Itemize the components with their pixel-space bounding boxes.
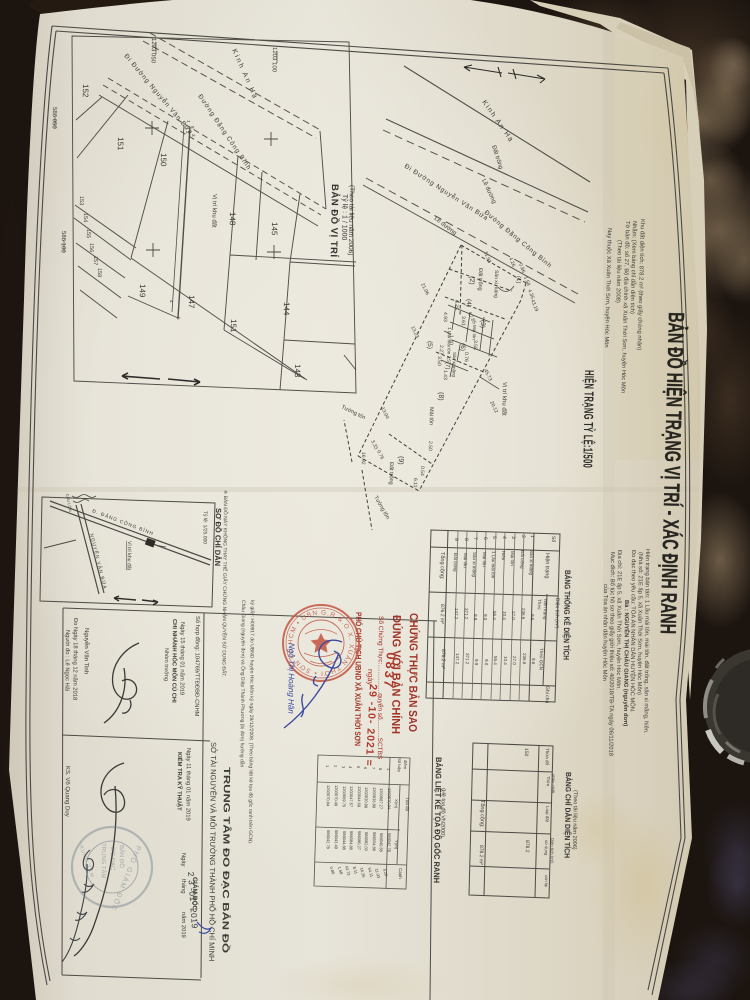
svg-text:1.43: 1.43 [442, 370, 448, 380]
svg-text:2.50: 2.50 [427, 441, 433, 451]
svg-text:9.0: 9.0 [483, 614, 488, 621]
svg-text:Mái tôn: Mái tôn [482, 552, 487, 567]
svg-text:148: 148 [228, 212, 237, 226]
svg-text:154: 154 [82, 213, 88, 222]
svg-text:151: 151 [116, 137, 125, 151]
svg-text:Mái tôn: Mái tôn [428, 407, 434, 425]
svg-text:KIỂM TRA KỸ THUẬT: KIỂM TRA KỸ THUẬT [175, 752, 183, 811]
svg-text:Bà : NGUYỄN THỊ CHÂU GIANG (ng: Bà : NGUYỄN THỊ CHÂU GIANG (nguyên đơn) [622, 600, 630, 726]
svg-text:Ngô Thị Hoàng Hân: Ngô Thị Hoàng Hân [286, 643, 296, 714]
svg-text:Số: Số [550, 536, 556, 542]
svg-text:6: 6 [482, 537, 488, 540]
svg-text:TRUNG TÂM ĐO ĐẠC BẢN ĐỒ: TRUNG TÂM ĐO ĐẠC BẢN ĐỒ [220, 767, 233, 953]
svg-text:Tọa độ: Tọa độ [405, 797, 410, 812]
svg-text:(3): (3) [479, 320, 486, 328]
svg-text:(8): (8) [437, 392, 444, 401]
svg-text:Cạnh: Cạnh [398, 868, 403, 879]
svg-text:SƠ ĐỒ CHỈ DẪN: SƠ ĐỒ CHỈ DẪN [213, 508, 224, 566]
svg-text:BẢN ĐỒ: BẢN ĐỒ [118, 845, 125, 868]
svg-text:(7): (7) [444, 362, 450, 369]
svg-text:7: 7 [472, 537, 478, 540]
svg-text:1 Lầu mái tôn: 1 Lầu mái tôn [491, 551, 496, 579]
svg-text:3.58: 3.58 [472, 340, 478, 350]
svg-text:(6): (6) [459, 343, 466, 351]
svg-text:Người đo : Lê Ngọc Hải: Người đo : Lê Ngọc Hải [63, 630, 70, 691]
svg-text:Diện tích (m²): Diện tích (m²) [553, 598, 560, 629]
svg-text:1203044.69: 1203044.69 [357, 786, 362, 808]
svg-text:1203 050: 1203 050 [150, 38, 156, 64]
svg-text:236.6: 236.6 [521, 608, 526, 620]
svg-text:Mái tôn: Mái tôn [463, 553, 468, 568]
svg-text:X(m): X(m) [394, 799, 399, 809]
svg-text:155: 155 [85, 229, 91, 238]
svg-text:158: 158 [96, 268, 102, 277]
svg-text:1203087.27: 1203087.27 [379, 788, 384, 810]
svg-text:Đất trống: Đất trống [453, 553, 458, 572]
svg-text:9.6: 9.6 [530, 614, 535, 621]
svg-text:878.2 m²: 878.2 m² [478, 845, 484, 865]
svg-text:10.4: 10.4 [503, 656, 508, 665]
svg-text:Y(m): Y(m) [394, 840, 399, 850]
svg-text:2.27: 2.27 [438, 345, 444, 355]
svg-text:9.9: 9.9 [473, 614, 478, 621]
svg-text:CHỨNG THỰC BẢN SAO: CHỨNG THỰC BẢN SAO [406, 613, 420, 732]
svg-text:Đo Ngày 18 tháng 12 năm 201: Đo Ngày 18 tháng 12 năm 2018 [71, 618, 78, 700]
svg-text:1 Lầu mái tôn 2,5T: 1 Lầu mái tôn 2,5T [446, 327, 452, 365]
svg-text:1203 100: 1203 100 [271, 47, 277, 73]
svg-text:còn lại: còn lại [544, 875, 549, 887]
svg-text:Đất trống: Đất trống [388, 462, 394, 485]
svg-text:152: 152 [81, 84, 90, 98]
svg-text:586040.58: 586040.58 [379, 833, 384, 853]
svg-text:878.2: 878.2 [524, 840, 530, 853]
svg-text:HIỆN TRẠNG TỶ LỆ:1/500: HIỆN TRẠNG TỶ LỆ:1/500 [580, 370, 597, 468]
svg-text:1203070.94: 1203070.94 [387, 788, 392, 810]
svg-text:3.61: 3.61 [460, 316, 466, 326]
svg-text:6.75: 6.75 [453, 300, 459, 310]
svg-text:586034.89: 586034.89 [372, 832, 377, 852]
svg-text:0.76: 0.76 [463, 352, 469, 362]
svg-text:Hiên: Hiên [501, 551, 506, 561]
svg-text:Tỷ lệ: 1/25.000: Tỷ lệ: 1/25.000 [201, 511, 209, 544]
svg-text:Nhóm trưởng: Nhóm trưởng [163, 648, 170, 681]
svg-text:157: 157 [92, 256, 98, 265]
svg-text:0837: 0837 [381, 652, 399, 690]
svg-text:876.2 m²: 876.2 m² [440, 649, 446, 669]
svg-text:1203030.88: 1203030.88 [364, 787, 369, 809]
svg-text:55.4: 55.4 [493, 656, 498, 665]
svg-text:1203047.57: 1203047.57 [349, 786, 354, 808]
svg-text:150: 150 [523, 748, 529, 757]
svg-text:586042.78: 586042.78 [326, 830, 331, 850]
svg-text:55.4: 55.4 [492, 611, 497, 620]
svg-text:KS. Võ Quang Duy: KS. Võ Quang Duy [64, 766, 70, 817]
svg-text:năm 2019: năm 2019 [180, 912, 186, 938]
svg-text:5: 5 [491, 536, 497, 539]
svg-text:Sân xi măng: Sân xi măng [472, 552, 477, 578]
svg-text:(1): (1) [515, 276, 521, 283]
svg-text:1: 1 [529, 535, 535, 538]
svg-text:27.0: 27.0 [511, 611, 516, 620]
svg-text:Đất trống: Đất trống [520, 550, 525, 569]
svg-text:Nguyễn Văn Tinh: Nguyễn Văn Tinh [83, 628, 90, 674]
svg-text:Sân xi măng: Sân xi măng [493, 270, 499, 298]
svg-text:9.9: 9.9 [474, 659, 479, 666]
svg-text:586090.27: 586090.27 [357, 831, 362, 851]
svg-text:Mái tôn: Mái tôn [510, 551, 515, 566]
svg-text:(2): (2) [468, 276, 475, 285]
svg-text:0.54: 0.54 [419, 466, 425, 476]
svg-text:(9): (9) [397, 456, 404, 465]
svg-text:BẢNG THỐNG KÊ DIỆN TÍCH: BẢNG THỐNG KÊ DIỆN TÍCH [561, 570, 573, 660]
svg-text:147.2: 147.2 [454, 608, 459, 620]
svg-text:9.0: 9.0 [484, 659, 489, 666]
svg-text:156: 156 [88, 243, 94, 252]
svg-text:hiện trạng: hiện trạng [543, 599, 548, 620]
svg-text:1203070.94: 1203070.94 [326, 785, 331, 807]
svg-text:9.6: 9.6 [531, 658, 536, 665]
svg-text:27.0: 27.0 [512, 656, 517, 665]
svg-text:1203069.70: 1203069.70 [342, 786, 347, 808]
svg-text:sử dụng: sử dụng [544, 840, 549, 856]
svg-text:Vị trí khu đất: Vị trí khu đất [210, 194, 217, 228]
svg-text:143: 143 [293, 364, 302, 378]
svg-text:(Theo tài liệu năm 2006): (Theo tài liệu năm 2006) [571, 790, 578, 850]
svg-text:586043.49: 586043.49 [334, 830, 339, 850]
svg-text:586082.03: 586082.03 [364, 832, 369, 852]
svg-text:điểm: điểm [403, 760, 408, 770]
svg-text:(Nhà số: 21E ấp 5, xã Xuân Thớ: (Nhà số: 21E ấp 5, xã Xuân Thới Sơn, huy… [636, 552, 643, 695]
svg-text:1203070.49: 1203070.49 [334, 785, 339, 807]
svg-text:Tổng cộng:: Tổng cộng: [439, 552, 446, 580]
svg-text:150: 150 [159, 153, 168, 167]
svg-text:Sân xi măng: Sân xi măng [529, 550, 534, 576]
svg-text:Châu Giang (nguyên đơn) và Ông: Châu Giang (nguyên đơn) và Ông Diệp Thàn… [239, 600, 247, 768]
svg-text:371.2: 371.2 [465, 653, 470, 665]
svg-text:1203036.88: 1203036.88 [372, 787, 377, 809]
svg-text:3: 3 [510, 536, 516, 539]
svg-text:4: 4 [501, 536, 507, 539]
svg-text:(Theo tài liệu năm 2006): (Theo tài liệu năm 2006) [347, 185, 355, 256]
svg-text:Diện tích (m²): Diện tích (m²) [550, 838, 555, 864]
svg-text:586084.88: 586084.88 [349, 831, 354, 851]
svg-text:Ngày: Ngày [180, 853, 186, 867]
svg-text:586 100: 586 100 [60, 231, 66, 253]
svg-text:9: 9 [453, 538, 459, 541]
svg-text:Thửa đổ: Thửa đổ [545, 748, 551, 766]
svg-text:Tổng cộng:: Tổng cộng: [479, 800, 486, 828]
svg-text:153: 153 [78, 196, 84, 205]
svg-text:145: 145 [270, 222, 279, 236]
svg-text:TRUNG TÂM: TRUNG TÂM [100, 843, 107, 879]
svg-text:2: 2 [520, 535, 526, 538]
svg-text:ĐO ĐẠC: ĐO ĐẠC [109, 847, 115, 871]
svg-text:149: 149 [138, 284, 147, 298]
svg-text:Vị trí khu đất: Vị trí khu đất [125, 541, 132, 571]
svg-text:Ghi chú: Ghi chú [544, 686, 550, 704]
svg-text:Hiện trạng: Hiện trạng [544, 553, 550, 578]
svg-text:(5): (5) [426, 341, 433, 349]
svg-text:586044.88: 586044.88 [342, 831, 347, 851]
svg-text:Ngày 15 tháng 01 năm 2019: Ngày 15 tháng 01 năm 2019 [178, 622, 185, 695]
svg-text:Ngày 11 tháng 01 năm 2019: Ngày 11 tháng 01 năm 2019 [184, 748, 191, 821]
svg-text:Theo: Theo [537, 599, 542, 610]
svg-text:151: 151 [229, 319, 238, 333]
svg-text:Địa chỉ: 21E ấp 5, xã Xuân Thớ: Địa chỉ: 21E ấp 5, xã Xuân Thới Sơn, huy… [615, 550, 623, 690]
svg-text:4.93: 4.93 [442, 312, 448, 322]
svg-text:Thửa: Thửa [546, 776, 551, 787]
svg-text:BẢN ĐỒ VỊ TRÍ: BẢN ĐỒ VỊ TRÍ [328, 184, 341, 258]
svg-text:8: 8 [463, 538, 469, 541]
svg-text:144: 144 [282, 302, 291, 316]
svg-text:phân chiết: phân chiết [551, 774, 556, 794]
svg-text:của Tòa án nhân dân huyện Hóc: của Tòa án nhân dân huyện Hóc Môn [601, 584, 609, 681]
svg-text:Mái tôn: Mái tôn [472, 325, 477, 340]
svg-text:Số hiệu: Số hiệu [397, 758, 402, 773]
svg-text:10.4: 10.4 [502, 611, 507, 620]
svg-text:1.40: 1.40 [448, 335, 454, 345]
svg-text:Sân xi măng: Sân xi măng [452, 352, 457, 378]
svg-text:876.2 m²: 876.2 m² [439, 604, 445, 624]
svg-text:147.2: 147.2 [455, 653, 460, 665]
svg-text:tháng: tháng [180, 879, 186, 894]
svg-text:Đất trống: Đất trống [477, 268, 483, 291]
svg-text:586042.78: 586042.78 [387, 833, 392, 853]
svg-text:(Hệ tọa độ VN2000): (Hệ tọa độ VN2000) [439, 788, 446, 837]
svg-text:6.11: 6.11 [412, 478, 418, 488]
svg-text:Loại đất: Loại đất [545, 806, 550, 823]
svg-text:Tỷ lệ : 1 / 1000: Tỷ lệ : 1 / 1000 [340, 194, 348, 241]
svg-text:Vị trí khu đất: Vị trí khu đất [500, 382, 507, 416]
svg-text:(4): (4) [465, 299, 472, 307]
svg-text:586 050: 586 050 [51, 107, 57, 129]
svg-text:3.50: 3.50 [436, 356, 442, 366]
svg-text:Số hợp đồng: 104769/TTĐĐBĐ-CN: Số hợp đồng: 104769/TTĐĐBĐ-CNHM [193, 616, 200, 717]
svg-text:147: 147 [187, 295, 196, 309]
svg-text:Theo GCN: Theo GCN [539, 648, 544, 670]
svg-text:16.92: 16.92 [360, 452, 366, 465]
svg-text:371.2: 371.2 [464, 608, 469, 620]
svg-text:236.6: 236.6 [522, 653, 527, 665]
